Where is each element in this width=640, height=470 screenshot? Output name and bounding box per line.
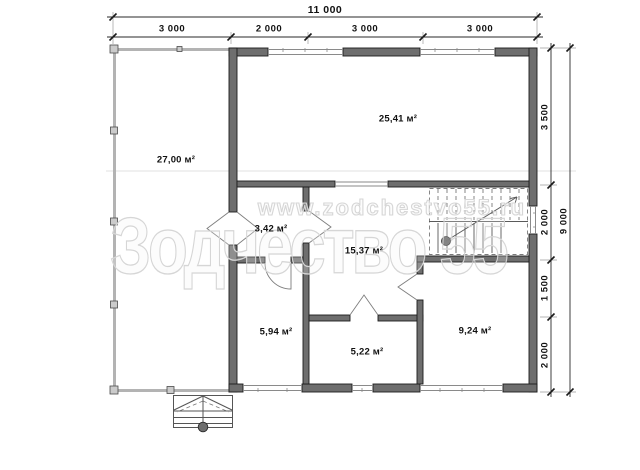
floor-plan-drawing: www.zodchestvo55.ru Зодчество 55 27,00 м… bbox=[0, 0, 640, 470]
dim-right-seg-1: 3 500 bbox=[540, 104, 551, 130]
entrance-porch bbox=[174, 396, 233, 432]
dim-top-seg-4: 3 000 bbox=[467, 24, 493, 35]
room-label-room-center: 5,22 м² bbox=[351, 347, 384, 358]
dim-right-total: 9 000 bbox=[559, 208, 570, 234]
exterior-walls bbox=[229, 48, 537, 392]
room-label-entry-hall: 3,42 м² bbox=[255, 224, 288, 235]
room-label-terrace: 27,00 м² bbox=[157, 155, 195, 166]
terrace-outline bbox=[110, 45, 229, 394]
dim-right-seg-2: 2 000 bbox=[540, 209, 551, 235]
dim-top-seg-1: 3 000 bbox=[159, 24, 185, 35]
dim-top-seg-2: 2 000 bbox=[256, 24, 282, 35]
room-label-room-right: 9,24 м² bbox=[459, 326, 492, 337]
porch-marker bbox=[198, 422, 208, 432]
dim-right-seg-3: 1 500 bbox=[540, 275, 551, 301]
staircase bbox=[429, 189, 528, 255]
room-label-hallway: 15,37 м² bbox=[345, 246, 383, 257]
room-label-living-room: 25,41 м² bbox=[379, 114, 417, 125]
dim-top-total: 11 000 bbox=[308, 4, 343, 16]
dim-right-seg-4: 2 000 bbox=[540, 342, 551, 368]
dim-top-seg-3: 3 000 bbox=[352, 24, 378, 35]
room-label-room-left: 5,94 м² bbox=[260, 327, 293, 338]
